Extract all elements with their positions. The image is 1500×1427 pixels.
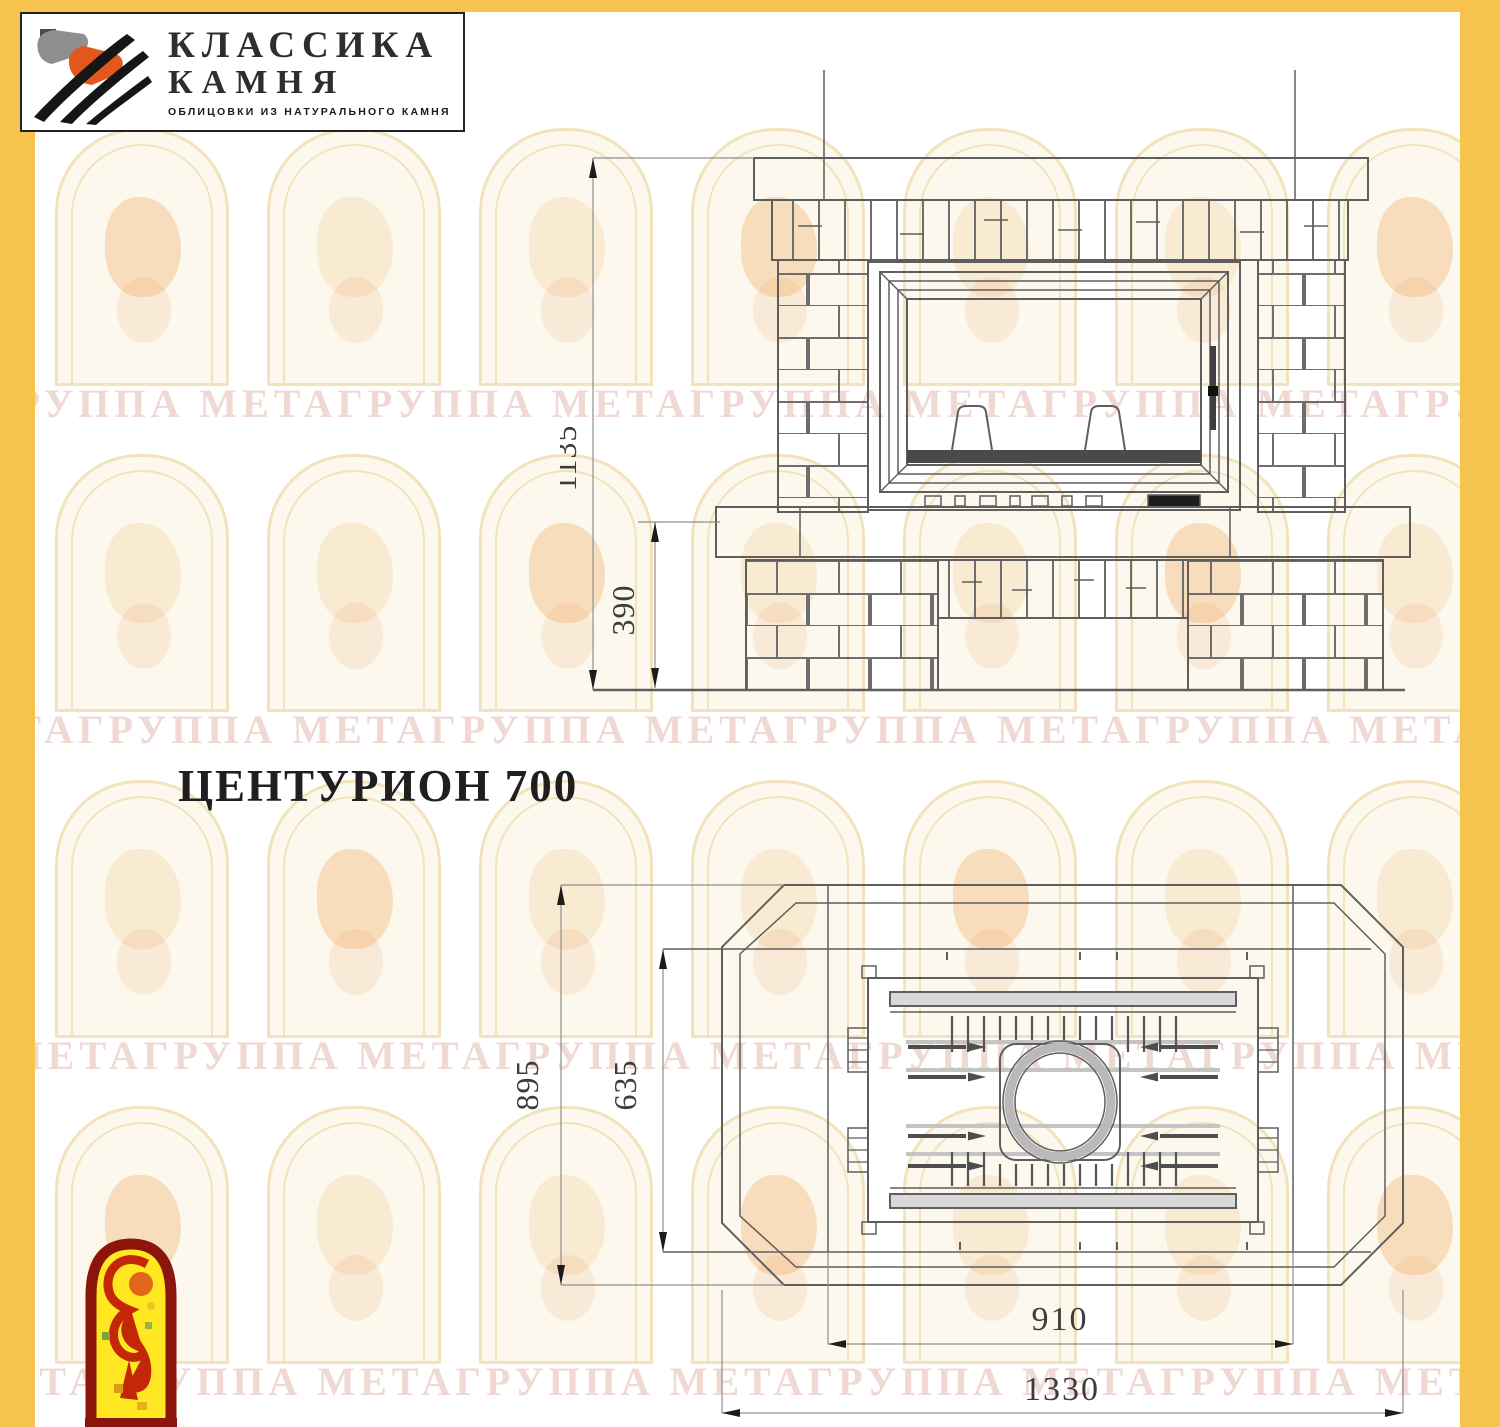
brand-stones-icon [30,19,162,125]
brand-title-line2: КАМНЯ [168,66,451,100]
watermark-figure-blob [329,277,383,343]
watermark-arch-icon [267,128,441,386]
bottom-rail [890,1194,1236,1208]
grate-slats [906,1040,1220,1156]
dim-label-inner-depth: 635 [607,1060,643,1111]
watermark-figure-blob [117,603,171,669]
front-elevation-drawing: 1135 390 [560,50,1440,750]
watermark-figure-blob [329,1255,383,1321]
brand-title-line1: КЛАССИКА [168,27,451,64]
top-rail [890,992,1236,1006]
dim-label-overall-height: 1135 [560,425,583,492]
flue-collar [1000,1041,1120,1163]
base-frieze-band [938,560,1188,618]
dim-label-overall-width: 1330 [1024,1371,1100,1408]
dimension-overall-depth: 895 [510,885,784,1285]
watermark-arch-icon [55,780,229,1038]
plan-outer-octagon [722,885,1403,1285]
watermark-arch-icon [55,454,229,712]
watermark-arch-icon [55,128,229,386]
plan-firebox-insert [848,952,1278,1250]
mantel-shelf [754,158,1368,200]
left-brick-column [778,260,868,512]
mantel-frieze-band [772,200,1348,260]
plan-view-drawing: 895 635 910 1330 [510,840,1450,1427]
watermark-arch-icon [267,454,441,712]
dim-label-overall-depth: 895 [510,1060,545,1111]
andiron-left-icon [952,406,992,450]
andiron-right-icon [1085,406,1125,450]
dim-label-inner-width: 910 [1032,1301,1089,1338]
chimney-flue-lines [824,70,1295,200]
drawing-sheet: ГРУППА МЕТАГРУППА МЕТАГРУППА МЕТАГРУППА … [0,0,1500,1427]
firebox-insert [868,262,1240,510]
plan-inner-octagon [740,903,1385,1267]
model-title: ЦЕНТУРИОН 700 [178,760,578,812]
hearth-shelf [716,507,1410,557]
air-vent-controls [925,495,1200,507]
watermark-arch-icon [267,1106,441,1364]
watermark-figure-blob [117,929,171,995]
base-right-pedestal [1188,560,1383,690]
base-left-pedestal [746,560,938,690]
dimension-inner-depth: 635 [607,949,667,1252]
watermark-figure-blob [117,277,171,343]
dim-label-base-height: 390 [605,585,641,636]
metagruppa-arch-logo-icon [85,1236,177,1427]
dimension-overall-height: 1135 [560,158,754,690]
dimension-base-height: 390 [605,522,720,688]
watermark-figure-blob [329,603,383,669]
ash-lip-bar [907,450,1201,463]
right-brick-column [1258,260,1345,512]
watermark-figure-blob [329,929,383,995]
watermark-arch-icon [267,780,441,1038]
brand-logo-box: КЛАССИКА КАМНЯ ОБЛИЦОВКИ ИЗ НАТУРАЛЬНОГО… [20,12,465,132]
brand-subtitle: ОБЛИЦОВКИ ИЗ НАТУРАЛЬНОГО КАМНЯ [168,107,451,118]
